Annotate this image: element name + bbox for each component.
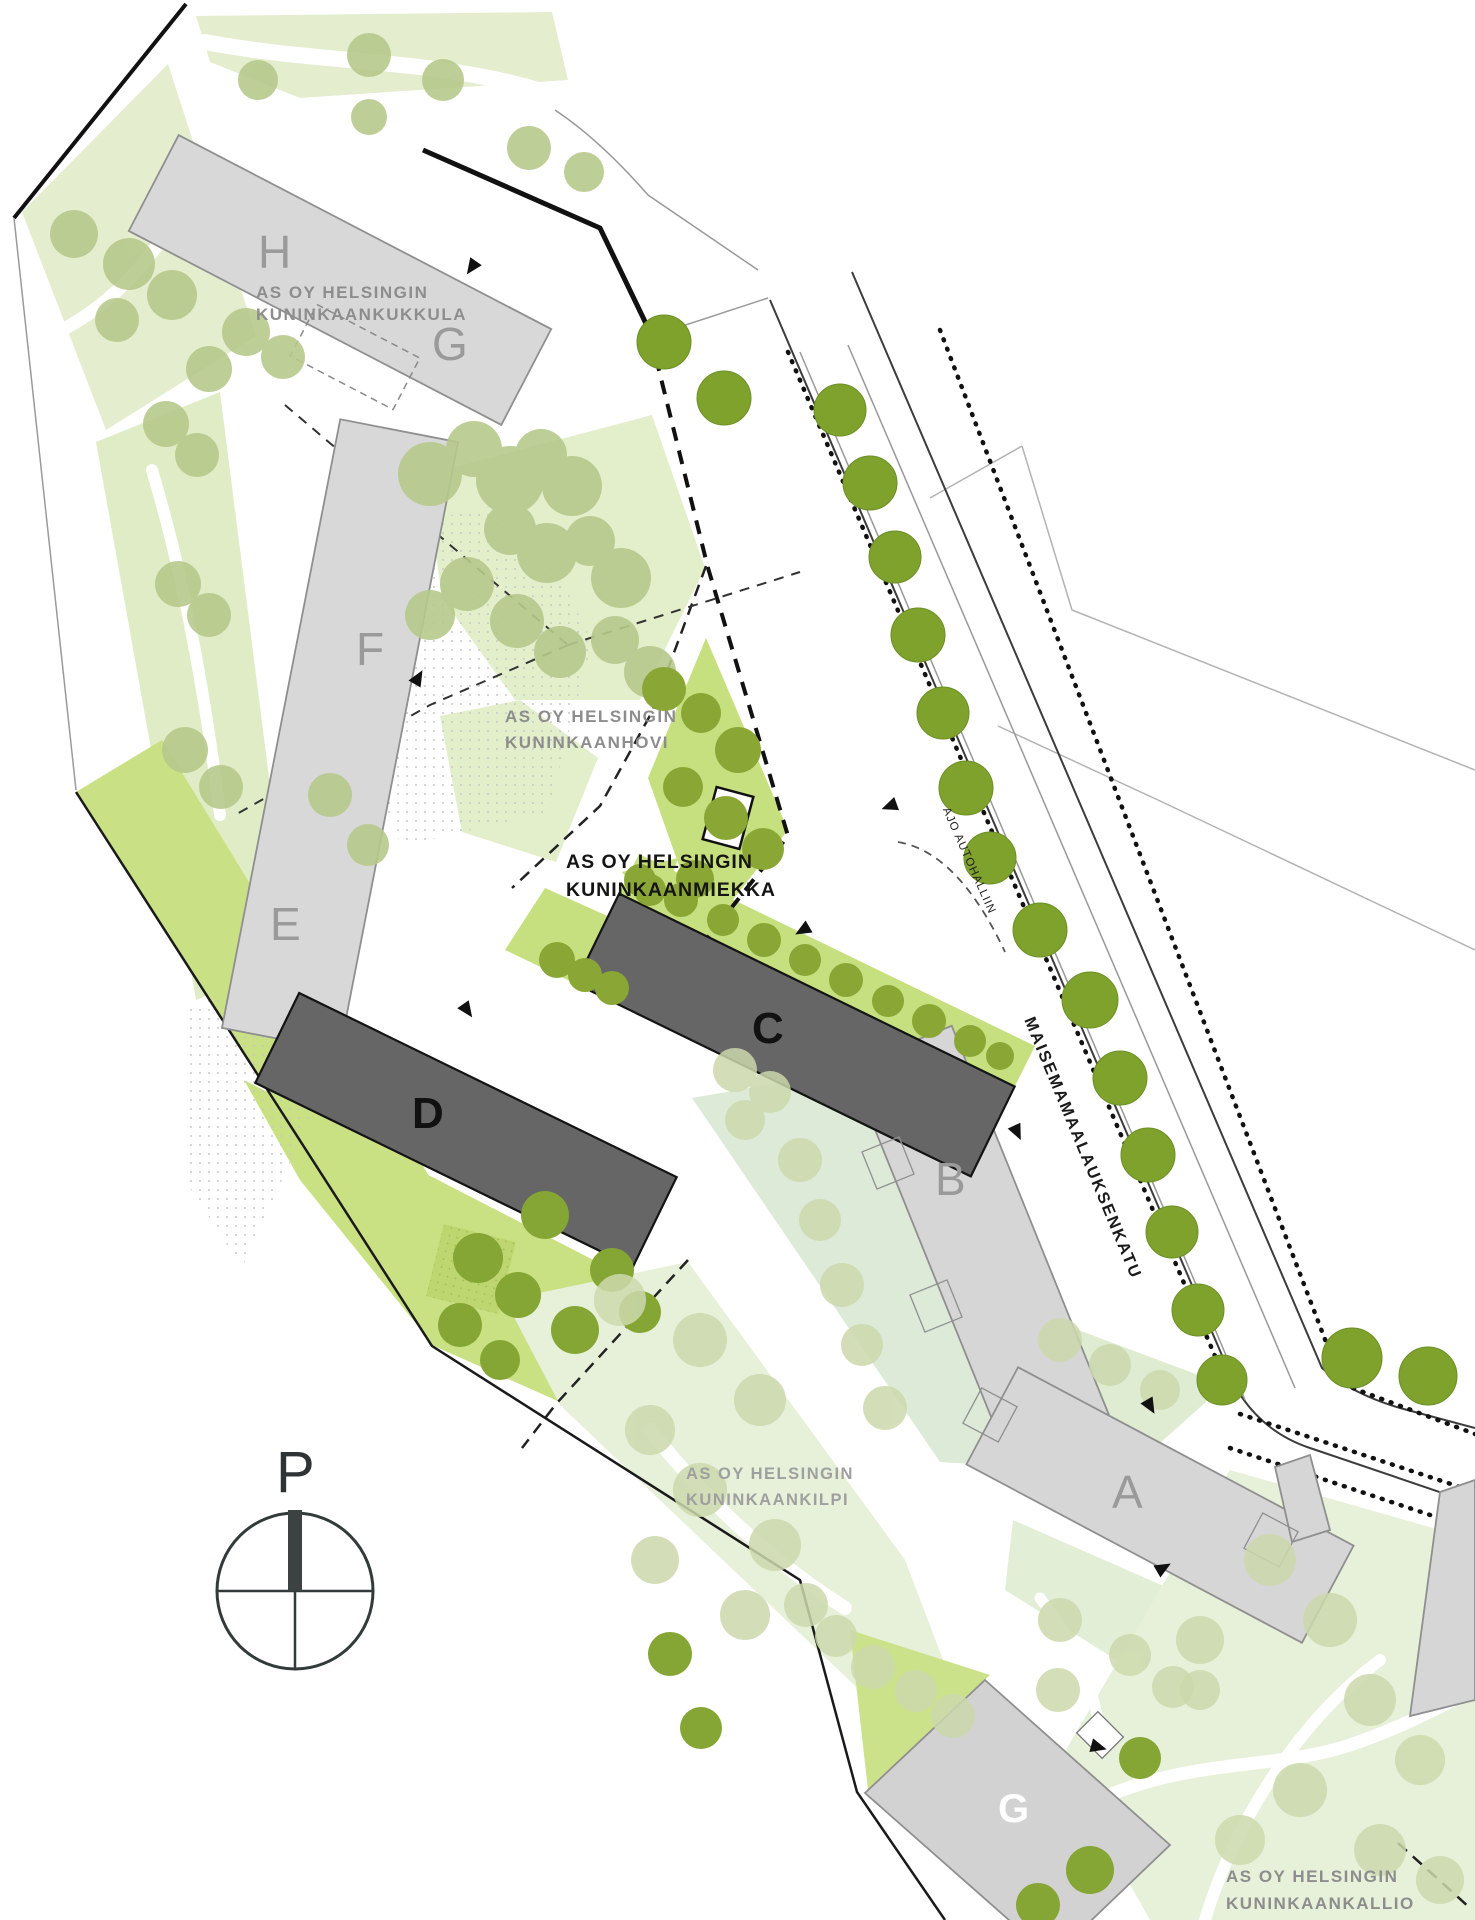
parcel-label-kilpi-line1: AS OY HELSINGIN (686, 1465, 854, 1483)
compass-north-needle (288, 1510, 302, 1591)
parcel-label-kilpi-line2: KUNINKAANKILPI (686, 1491, 849, 1509)
parcel-label-kukkula-line1: AS OY HELSINGIN (256, 283, 428, 302)
building-label-h: H (258, 226, 292, 278)
parcel-label-kallio-line2: KUNINKAANKALLIO (1226, 1894, 1415, 1913)
parcel-label-miekka-line1: AS OY HELSINGIN (566, 851, 753, 873)
building-label-a: A (1112, 1466, 1144, 1518)
parcel-label-hovi-line1: AS OY HELSINGIN (505, 707, 677, 726)
building-label-g-top: G (432, 318, 469, 370)
building-label-b: B (935, 1153, 967, 1205)
compass: P (217, 1440, 373, 1669)
building-label-c: C (752, 1004, 784, 1053)
building-label-d: D (412, 1089, 444, 1138)
building-label-f: F (356, 623, 385, 675)
parcel-label-miekka-line2: KUNINKAANMIEKKA (566, 879, 776, 901)
parcel-label-kukkula-line2: KUNINKAANKUKKULA (256, 305, 467, 324)
compass-label: P (276, 1440, 315, 1505)
building-label-g-bottom: G (998, 1787, 1029, 1831)
parcel-label-kallio-line1: AS OY HELSINGIN (1226, 1867, 1398, 1886)
building-label-e: E (270, 898, 302, 950)
site-plan: H G F E D C B A G AS OY HELSINGIN KUNINK… (0, 0, 1475, 1920)
parcel-label-hovi-line2: KUNINKAANHOVI (505, 733, 669, 752)
